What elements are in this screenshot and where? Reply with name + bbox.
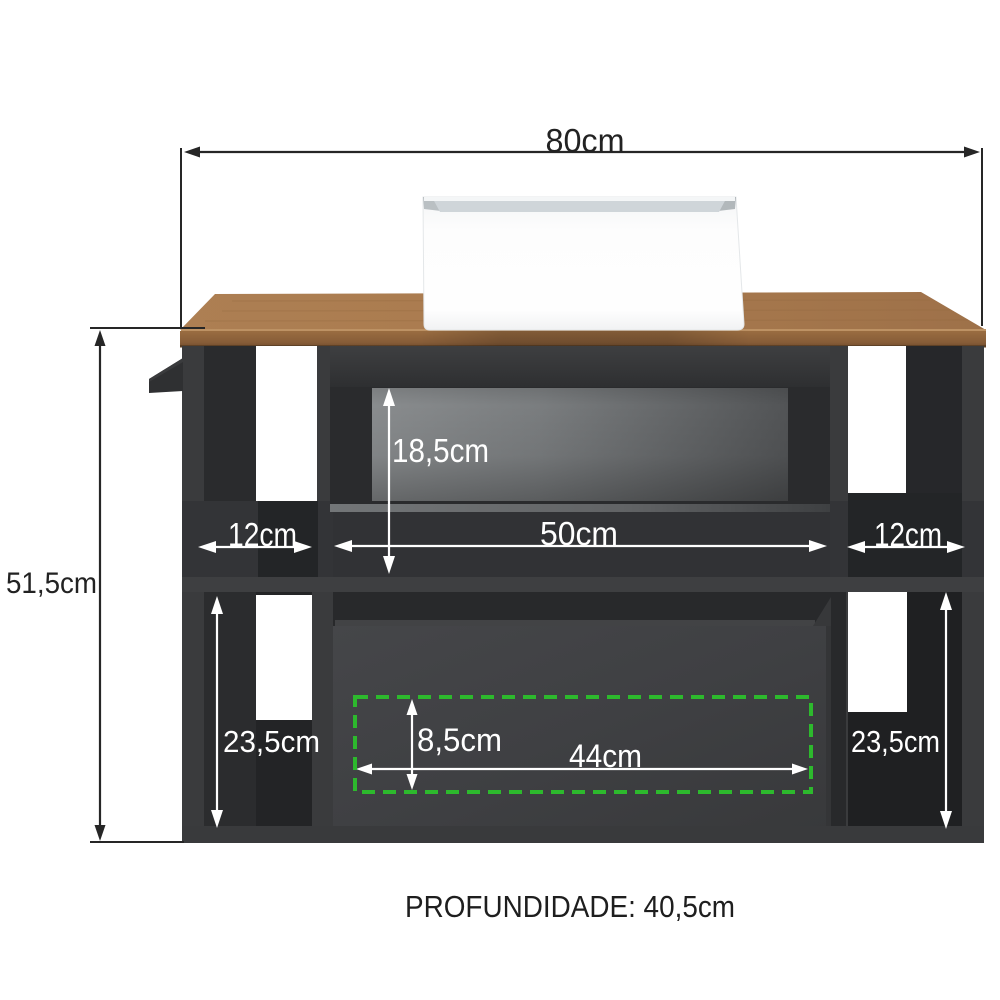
svg-text:50cm: 50cm <box>540 515 618 552</box>
svg-text:80cm: 80cm <box>546 122 625 159</box>
svg-text:44cm: 44cm <box>569 738 642 774</box>
svg-text:23,5cm: 23,5cm <box>851 724 940 759</box>
svg-text:12cm: 12cm <box>874 516 942 553</box>
svg-text:51,5cm: 51,5cm <box>6 567 97 600</box>
svg-text:PROFUNDIDADE: 40,5cm: PROFUNDIDADE: 40,5cm <box>405 889 735 924</box>
svg-text:18,5cm: 18,5cm <box>392 432 489 469</box>
svg-text:12cm: 12cm <box>228 516 297 553</box>
svg-text:23,5cm: 23,5cm <box>223 724 320 759</box>
svg-text:8,5cm: 8,5cm <box>417 722 502 758</box>
